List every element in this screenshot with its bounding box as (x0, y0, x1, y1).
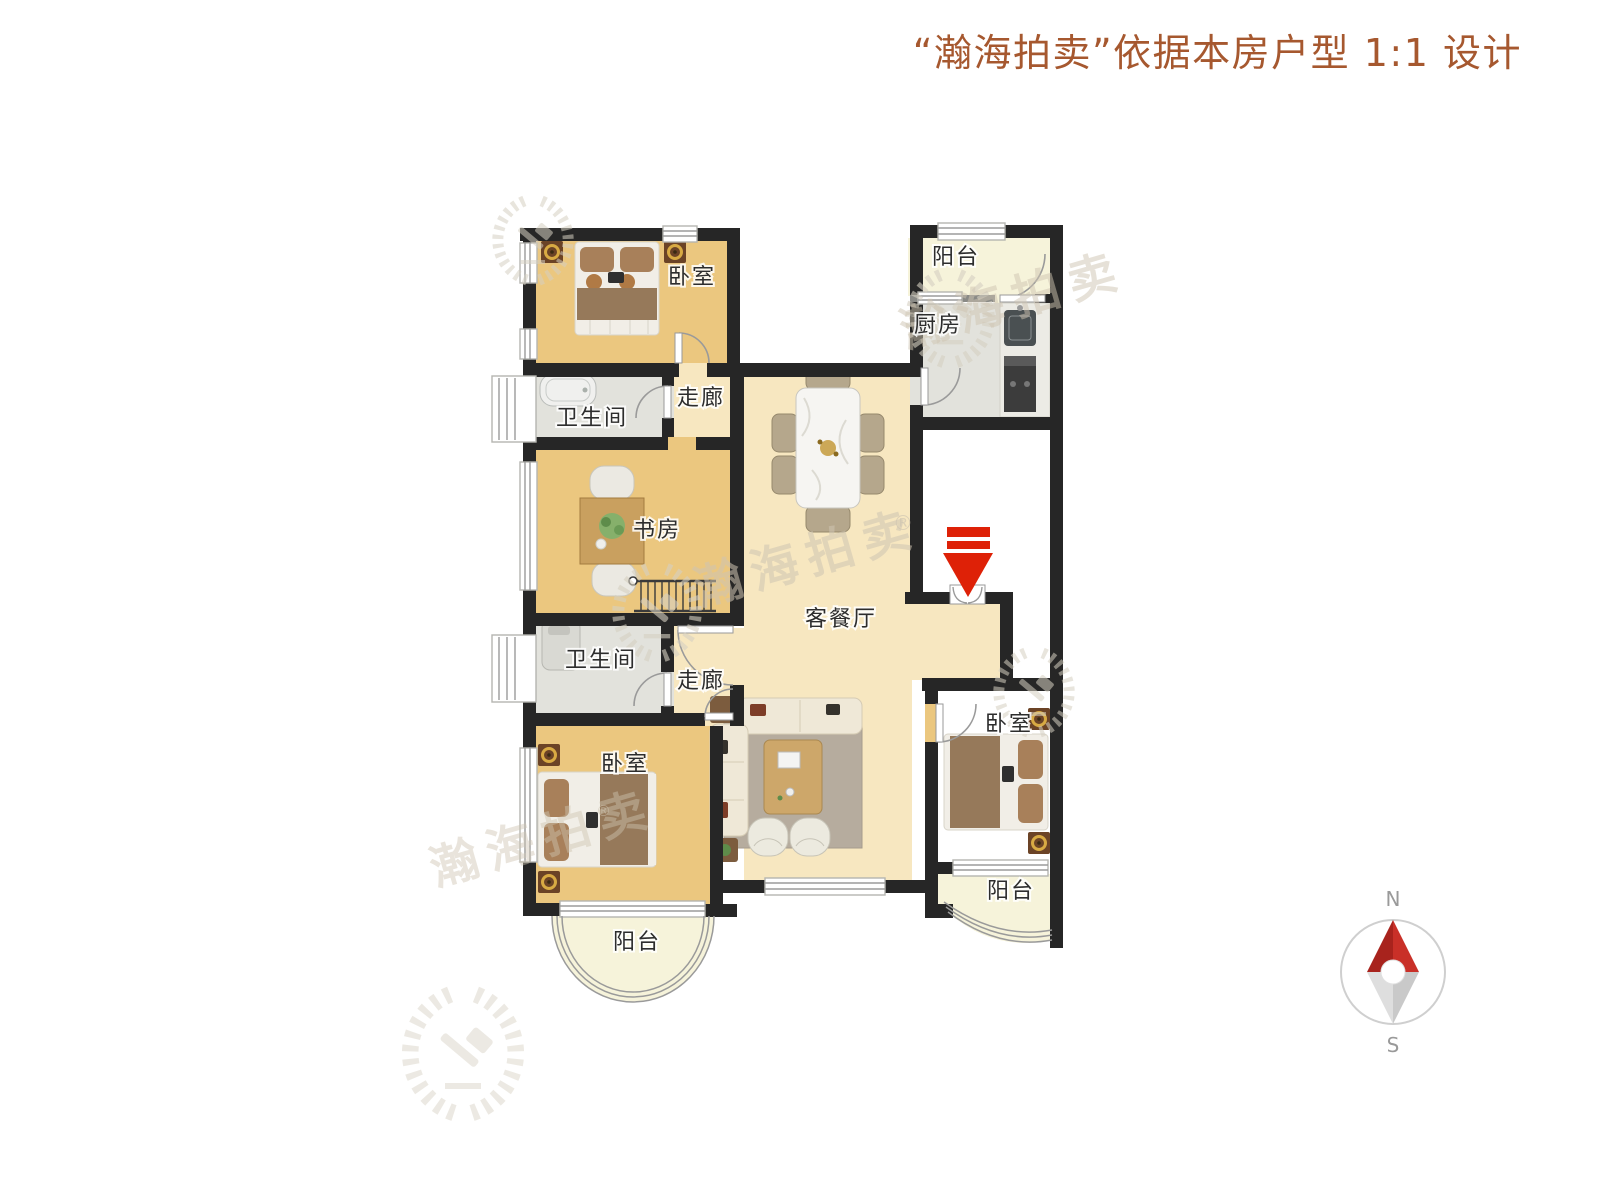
bed-top (575, 242, 659, 335)
floor-balcony-bottom-left (552, 916, 714, 1002)
bay-window (492, 376, 536, 442)
armchair (748, 818, 788, 856)
label-kitchen: 厨房 (914, 313, 962, 338)
compass-needle-icon (1367, 920, 1419, 1024)
coffee-table (764, 740, 822, 814)
study-chair (590, 466, 634, 500)
label-bedroom-right: 卧室 (985, 712, 1033, 737)
registered-mark: ® (596, 802, 611, 820)
page-title: “瀚海拍卖”依据本房户型 1:1 设计 (913, 31, 1522, 75)
window (520, 462, 537, 590)
opening-corridor-study (666, 437, 696, 451)
south-label: S (1387, 1033, 1400, 1057)
floor-plan-page: 瀚海拍卖 ® 瀚海拍卖 ® 瀚海拍卖 卧室 阳台 厨房 卫生间 走廊 书房 客餐… (0, 0, 1600, 1200)
registered-mark: ® (893, 511, 913, 535)
label-bedroom-bottom: 卧室 (601, 752, 649, 777)
bathtub (540, 374, 596, 406)
dining-chair (772, 414, 798, 452)
nightstand-lamp-icon (538, 871, 560, 893)
label-bathroom-top: 卫生间 (556, 406, 628, 431)
label-balcony-top: 阳台 (932, 245, 980, 270)
label-study: 书房 (633, 518, 681, 543)
window (938, 223, 1005, 240)
nightstand-lamp-icon (1028, 832, 1050, 854)
floor-plan-canvas: 瀚海拍卖 ® 瀚海拍卖 ® 瀚海拍卖 卧室 阳台 厨房 卫生间 走廊 书房 客餐… (0, 0, 1600, 1200)
floor-entry-lobby (910, 604, 1002, 680)
label-corridor-top: 走廊 (677, 386, 725, 411)
label-bedroom-top: 卧室 (668, 265, 716, 290)
label-living-dining: 客餐厅 (805, 607, 877, 632)
label-balcony-bottom-right: 阳台 (987, 879, 1035, 904)
nightstand-lamp-icon (664, 241, 686, 263)
window (520, 329, 537, 359)
window (765, 878, 885, 895)
label-bathroom-bottom: 卫生间 (565, 648, 637, 673)
compass: N S (1341, 887, 1445, 1057)
dining-chair (772, 456, 798, 494)
wreath-watermark-icon (410, 993, 516, 1113)
armchair (790, 818, 830, 856)
window (560, 901, 705, 917)
label-balcony-bottom-left: 阳台 (613, 930, 661, 955)
window (663, 226, 697, 242)
bed-right (944, 734, 1048, 830)
nightstand-lamp-icon (538, 744, 560, 766)
opening-bedroom-top-door (679, 363, 707, 377)
opening-corridor-bottom-door (730, 628, 744, 685)
dining-chair (858, 414, 884, 452)
bay-window (492, 635, 536, 702)
north-label: N (1386, 887, 1401, 911)
window (953, 860, 1048, 876)
dining-chair (858, 456, 884, 494)
label-corridor-bottom: 走廊 (677, 669, 725, 694)
